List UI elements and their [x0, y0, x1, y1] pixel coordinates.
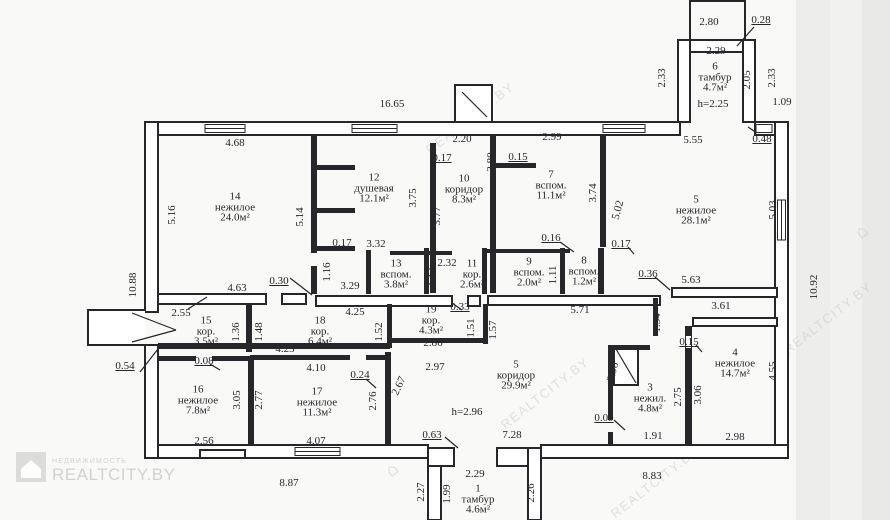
room-label-7-11: 11кор.2.6м²: [460, 258, 484, 290]
dimension-label: 0.09: [594, 412, 613, 424]
dimension-label: 1.52: [373, 322, 385, 341]
dimension-label: 2.05: [741, 70, 753, 89]
dimension-label: 4.25: [345, 306, 364, 318]
scanned-floor-plan-page: REALTCITY.BY REALTCITY.BY REALTCITY.BY R…: [0, 0, 890, 520]
dimension-label: 16.65: [380, 98, 405, 110]
realtcity-watermark: НЕДВИЖИМОСТЬ REALTCITY.BY: [16, 452, 175, 485]
dimension-label: 1.51: [465, 318, 477, 337]
dimension-label: 2.80: [699, 16, 718, 28]
dimension-label: 0.17: [611, 238, 630, 250]
dimension-label: 2.33: [766, 68, 778, 87]
dimension-label: 2.56: [194, 435, 213, 447]
dimension-label: 0.54: [115, 360, 134, 372]
dimension-label: 1.09: [772, 96, 791, 108]
dimension-label: 1.14: [427, 267, 439, 286]
dimension-label: 0.17: [332, 237, 351, 249]
dimension-label: 3.05: [231, 390, 243, 409]
dimension-label: 2.99: [542, 131, 561, 143]
dimension-label: 0.24: [350, 369, 369, 381]
room-label-2-10: 10коридор8.3м²: [445, 173, 483, 205]
dimension-label: h=2.25: [698, 98, 729, 110]
dimension-label: 0.63: [422, 429, 441, 441]
dimension-label: 0.16: [541, 232, 560, 244]
dimension-label: 1.36: [230, 322, 242, 341]
dimension-label: 0.15: [679, 336, 698, 348]
dimension-label: 5.16: [166, 205, 178, 224]
dimension-label: 2.76: [367, 391, 379, 410]
dimension-label: 1.99: [441, 484, 453, 503]
dimension-label: 3.77: [431, 206, 443, 225]
dimension-label: 2.29: [706, 45, 725, 57]
dimension-label: 2.97: [425, 361, 444, 373]
dimension-label: 1.54: [651, 313, 663, 332]
room-label-17-4: 4нежилое14.7м²: [715, 347, 755, 379]
dimension-label: 8.83: [642, 470, 661, 482]
dimension-label: 2.20: [452, 133, 471, 145]
dimension-label: 10.92: [808, 275, 820, 300]
dimension-label: 0.36: [638, 268, 657, 280]
dimension-label: 3.75: [407, 188, 419, 207]
dimension-label: 2.86: [423, 337, 442, 349]
dimension-label: 5.14: [294, 207, 306, 226]
dimension-label: 1.48: [253, 322, 265, 341]
room-label-3-7: 7вспом.11.1м²: [536, 169, 567, 201]
dimension-label: 2.75: [672, 387, 684, 406]
dimension-label: 0.08: [194, 355, 213, 367]
watermark-brand: REALTCITY.BY: [52, 465, 175, 485]
dimension-label: 0.33: [450, 301, 469, 313]
dimension-label: 4.68: [225, 137, 244, 149]
dimension-label: 1.91: [643, 430, 662, 442]
room-label-14-17: 17нежилое11.3м²: [297, 386, 337, 418]
room-label-8-9: 9вспом.2.0м²: [514, 256, 545, 288]
dimension-label: 2.33: [656, 68, 668, 87]
dimension-label: 5.55: [683, 134, 702, 146]
dimension-label: 4.55: [767, 361, 779, 380]
dimension-label: 3.74: [587, 183, 599, 202]
room-label-1-12: 12душевая12.1м²: [354, 172, 393, 204]
dimension-label: 4.07: [306, 435, 325, 447]
room-label-11-18: 18кор.6.4м²: [308, 315, 332, 347]
dimension-label: 5.03: [767, 200, 779, 219]
dimension-label: 3.06: [692, 385, 704, 404]
dimension-label: h=2.96: [452, 406, 483, 418]
dimension-label: 3.32: [366, 238, 385, 250]
dimension-label: 3.29: [340, 280, 359, 292]
dimension-label: 8.87: [279, 477, 298, 489]
dimension-label: 3.61: [711, 300, 730, 312]
room-label-9-8: 8вспом.1.2м²: [569, 255, 600, 287]
room-label-18-1: 1тамбур4.6м²: [462, 483, 495, 515]
room-label-16-3: 3нежил.4.8м²: [634, 382, 667, 414]
dimension-label: 1.11: [547, 266, 559, 285]
dimension-label: 10.88: [127, 273, 139, 298]
room-label-0-14: 14нежилое24.0м²: [215, 191, 255, 223]
dimension-label: 0.30: [269, 275, 288, 287]
room-label-5-6: 6тамбур4.7м²: [699, 61, 732, 93]
dimension-label: 0.15: [508, 151, 527, 163]
dimension-label: 2.26: [525, 483, 537, 502]
room-label-15-5: 5коридор29.9м²: [497, 359, 535, 391]
dimension-label: 2.29: [465, 468, 484, 480]
dimension-label: 1.16: [321, 262, 333, 281]
dimension-label: 4.63: [227, 282, 246, 294]
room-label-13-16: 16нежилое7.8м²: [178, 384, 218, 416]
dimension-label: 3.80: [485, 152, 497, 171]
room-label-12-19: 19кор.4.3м²: [419, 304, 443, 336]
room-label-10-15: 15кор.3.5м²: [194, 315, 218, 347]
dimension-label: 5.71: [570, 304, 589, 316]
dimension-label: 2.77: [253, 390, 265, 409]
dimension-label: 4.23: [275, 343, 294, 355]
room-label-6-13: 13вспом.3.8м²: [381, 258, 412, 290]
dimension-label: 2.32: [437, 257, 456, 269]
dimension-label: 2.27: [415, 482, 427, 501]
dimension-label: 5.63: [681, 274, 700, 286]
dimension-label: 4.10: [306, 362, 325, 374]
dimension-label: 0.48: [752, 133, 771, 145]
dimension-label: 0.17: [432, 152, 451, 164]
realtcity-logo-icon: [16, 452, 46, 482]
room-label-4-5: 5нежилое28.1м²: [676, 194, 716, 226]
dimension-label: 0.28: [751, 14, 770, 26]
dimension-label: 7.28: [502, 429, 521, 441]
dimension-label: 1.57: [487, 320, 499, 339]
dimension-label: 2.98: [725, 431, 744, 443]
watermark-tagline: НЕДВИЖИМОСТЬ: [52, 458, 175, 465]
dimension-label: 2.55: [171, 307, 190, 319]
